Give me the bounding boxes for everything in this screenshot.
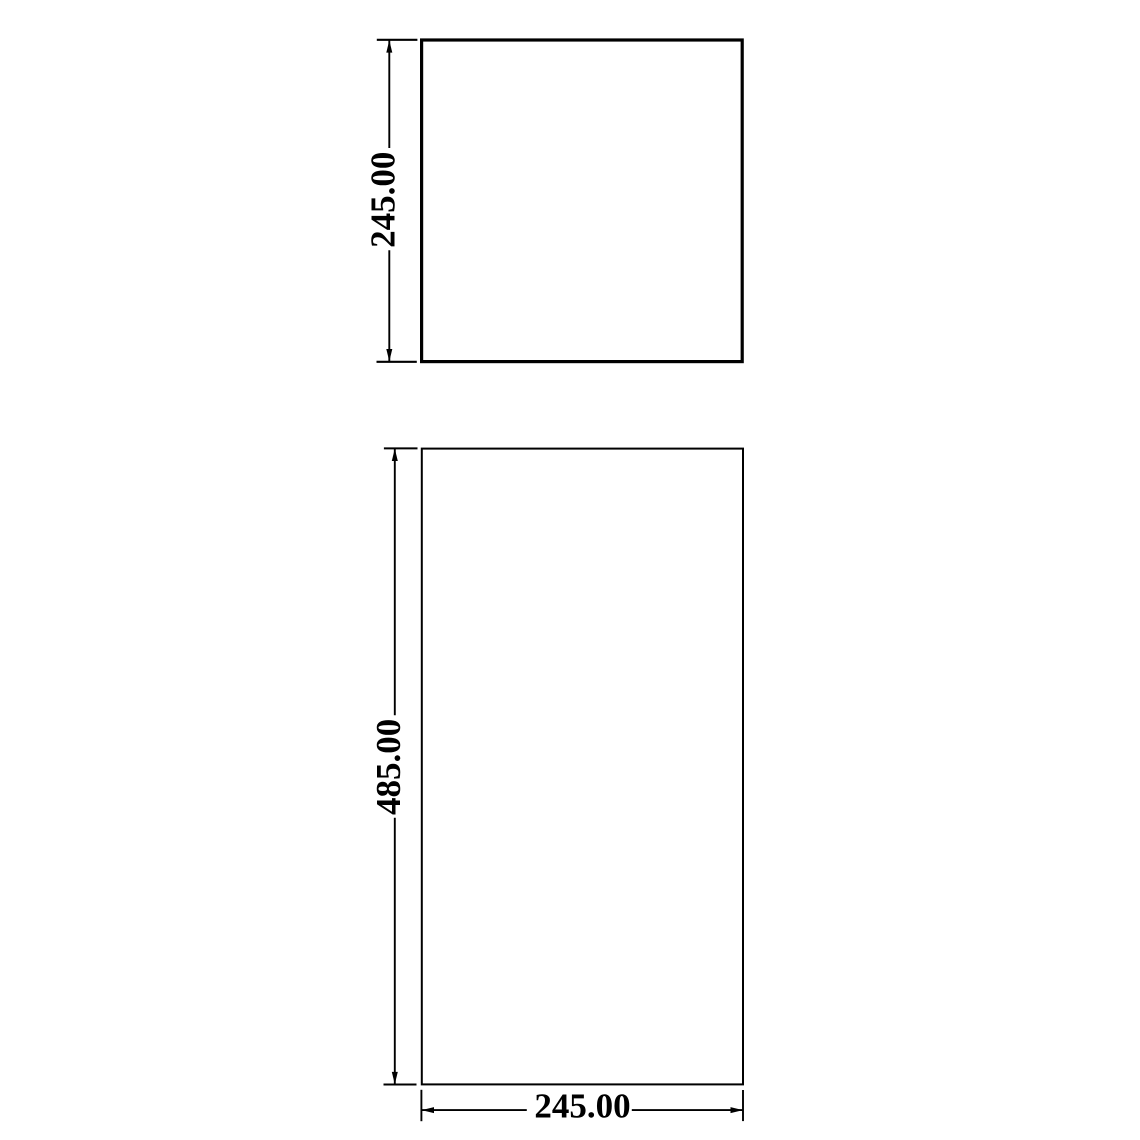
svg-text:245.00: 245.00 [534,1087,630,1126]
svg-text:245.00: 245.00 [364,152,403,248]
svg-text:485.00: 485.00 [369,719,408,815]
